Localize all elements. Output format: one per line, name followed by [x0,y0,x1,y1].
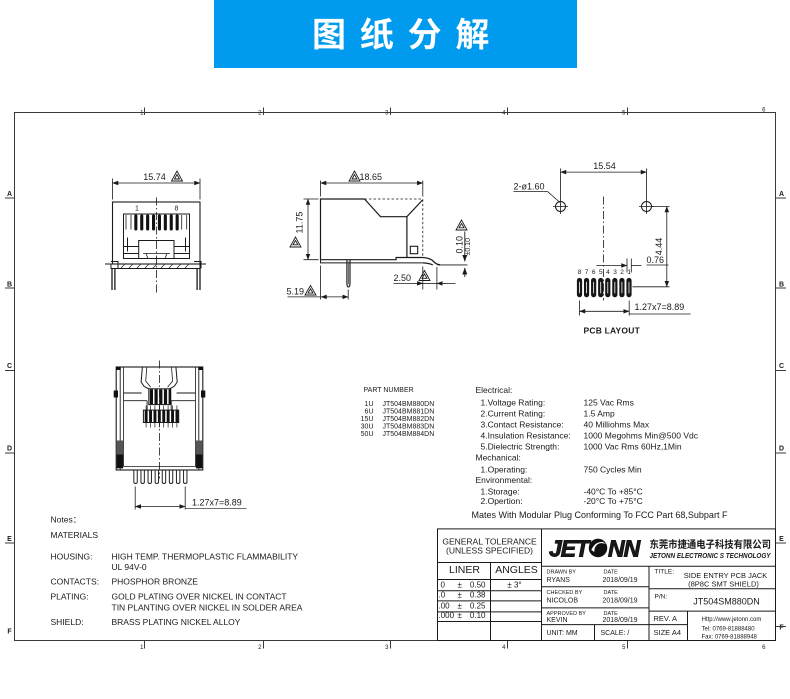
svg-text:2-ø1.60: 2-ø1.60 [514,182,545,192]
svg-text:1.27x7=8.89: 1.27x7=8.89 [635,302,685,312]
svg-text:SCALE: /: SCALE: / [601,630,630,637]
svg-text:0.25: 0.25 [470,602,486,611]
svg-text:PLATING:: PLATING: [51,592,89,602]
svg-text:GOLD PLATING OVER NICKEL IN CO: GOLD PLATING OVER NICKEL IN CONTACT [112,592,287,602]
svg-text:±: ± [458,602,463,611]
svg-text:8: 8 [578,269,582,276]
svg-text:(UNLESS SPECIFIED): (UNLESS SPECIFIED) [446,546,533,556]
svg-text:±: ± [458,591,463,600]
svg-text:1000 Vac Rms 60Hz,1Min: 1000 Vac Rms 60Hz,1Min [584,442,682,452]
svg-text:P/N:: P/N: [655,594,668,601]
svg-text:JT504BM880DN: JT504BM880DN [383,401,435,408]
svg-text:0.76: 0.76 [647,255,665,265]
svg-text:1000 Megohms Min@500 Vdc: 1000 Megohms Min@500 Vdc [584,431,699,441]
svg-text:3.Contact Resistance:: 3.Contact Resistance: [481,420,564,430]
svg-text:1.5 Amp: 1.5 Amp [584,409,615,419]
svg-text:1.Voltage Rating:: 1.Voltage Rating: [481,398,546,408]
svg-text:E: E [7,536,12,543]
svg-text:A: A [779,191,784,198]
svg-text:B: B [779,282,784,289]
svg-text:1: 1 [135,206,139,213]
svg-text:Electrical:: Electrical: [476,385,513,395]
svg-text:DATE: DATE [604,590,619,596]
svg-text:2018/09/19: 2018/09/19 [603,577,638,584]
svg-text:0.38: 0.38 [470,591,486,600]
svg-text:UNIT: MM: UNIT: MM [547,630,578,637]
svg-text:4: 4 [502,645,506,651]
svg-text:C: C [779,363,784,370]
svg-text:C: C [7,363,12,370]
svg-text:4: 4 [606,269,610,276]
svg-text:1.27x7=8.89: 1.27x7=8.89 [192,498,242,508]
svg-text:18.65: 18.65 [360,172,383,182]
svg-text:0.10: 0.10 [470,611,486,620]
svg-text:2: 2 [620,269,624,276]
svg-text:NN: NN [608,536,641,562]
svg-text:HIGH TEMP. THERMOPLASTIC FLAMM: HIGH TEMP. THERMOPLASTIC FLAMMABILITY [112,552,299,562]
svg-text:2018/09/19: 2018/09/19 [603,617,638,624]
svg-text:PCB LAYOUT: PCB LAYOUT [584,326,641,336]
svg-text:15.54: 15.54 [593,161,616,171]
svg-text:TITLE:: TITLE: [655,569,675,576]
svg-text:CHECKED BY: CHECKED BY [547,590,583,596]
svg-text:8: 8 [175,206,179,213]
svg-text:15U: 15U [361,416,374,423]
svg-text:5.Dielectric Strength:: 5.Dielectric Strength: [481,442,560,452]
svg-text:2.50: 2.50 [394,273,412,283]
svg-text:4.Insulation Resistance:: 4.Insulation Resistance: [481,431,571,441]
svg-text:BRASS PLATING NICKEL ALLOY: BRASS PLATING NICKEL ALLOY [112,617,241,627]
svg-text:RYANS: RYANS [547,577,571,584]
svg-text:6: 6 [592,269,596,276]
svg-text:E: E [779,536,784,543]
svg-text:JT504BM881DN: JT504BM881DN [383,409,435,416]
svg-text:KEVIN: KEVIN [547,617,568,624]
svg-text:CONTACTS:: CONTACTS: [51,577,99,587]
svg-text:(8P8C SMT SHIELD): (8P8C SMT SHIELD) [688,580,759,589]
svg-text:5: 5 [599,269,603,276]
svg-text:4.44: 4.44 [654,238,664,256]
svg-text:B: B [7,282,12,289]
svg-text:2.Current Rating:: 2.Current Rating: [481,409,546,419]
svg-text:30U: 30U [361,424,374,431]
svg-text:1: 1 [140,645,144,651]
svg-text:1.Storage:: 1.Storage: [481,487,520,497]
svg-text:2: 2 [258,645,262,651]
svg-text:.0: .0 [439,591,446,600]
svg-text:SHIELD:: SHIELD: [51,617,84,627]
svg-text:F: F [7,629,12,636]
svg-text:2: 2 [258,111,262,117]
svg-text:1U: 1U [365,401,374,408]
svg-text:±: ± [458,611,463,620]
svg-text:HOUSING:: HOUSING: [51,552,93,562]
svg-text:DATE: DATE [604,570,619,576]
svg-text:NICOLOB: NICOLOB [547,598,579,605]
svg-text:3: 3 [613,269,617,276]
svg-text:4: 4 [502,111,506,117]
svg-text:JT504SM880DN: JT504SM880DN [693,597,760,607]
svg-text:.00: .00 [439,602,451,611]
svg-text:6: 6 [762,645,766,651]
svg-text:Tel: 0769-81888480: Tel: 0769-81888480 [702,627,756,633]
svg-text:3: 3 [385,111,389,117]
svg-text:JT504BM882DN: JT504BM882DN [383,416,435,423]
svg-text:1.Operating:: 1.Operating: [481,465,528,475]
svg-text:-40°C To +85°C: -40°C To +85°C [584,487,643,497]
svg-text:D: D [779,446,784,453]
svg-text:2018/09/19: 2018/09/19 [603,598,638,605]
svg-text:Fax: 0769-81888948: Fax: 0769-81888948 [702,635,758,641]
svg-text:±: ± [458,581,463,590]
svg-text:UL 94V-0: UL 94V-0 [112,562,147,572]
svg-text:1: 1 [140,111,144,117]
svg-text:ANGLES: ANGLES [495,564,538,576]
svg-text:Mates With Modular Plug Confor: Mates With Modular Plug Conforming To FC… [472,510,728,520]
svg-text:SIZE A4: SIZE A4 [654,628,682,637]
svg-text:PHOSPHOR BRONZE: PHOSPHOR BRONZE [112,577,199,587]
svg-text:JETONN ELECTRONIC S TECHNOLOGY: JETONN ELECTRONIC S TECHNOLOGY [650,551,772,560]
svg-text:5: 5 [622,645,626,651]
svg-text:1: 1 [627,269,631,276]
svg-text:11.75: 11.75 [295,212,305,234]
svg-text:7: 7 [585,269,589,276]
svg-text:2.Opertion:: 2.Opertion: [481,496,523,506]
svg-text:DRAWN BY: DRAWN BY [547,570,577,576]
svg-text:PART NUMBER: PART NUMBER [364,387,414,394]
svg-text:-20°C To +75°C: -20°C To +75°C [584,496,643,506]
svg-text:50U: 50U [361,431,374,438]
svg-text:5: 5 [622,111,626,117]
svg-text:MATERIALS: MATERIALS [51,530,99,540]
svg-text:LINER: LINER [449,564,480,576]
svg-text:0: 0 [441,581,446,590]
svg-text:±0.10: ±0.10 [465,238,472,256]
svg-text:5.19: 5.19 [287,287,305,297]
svg-text:Environmental:: Environmental: [476,475,533,485]
svg-text:Notes：: Notes： [51,515,82,525]
svg-text:0.10: 0.10 [455,236,465,254]
svg-text:JT504BM883DN: JT504BM883DN [383,424,435,431]
svg-text:D: D [7,446,12,453]
svg-text:JET: JET [549,536,591,562]
svg-text:JT504BM884DN: JT504BM884DN [383,431,435,438]
svg-text:Mechanical:: Mechanical: [476,453,521,463]
svg-text:A: A [7,191,12,198]
svg-text:F: F [779,625,784,632]
svg-text:TIN PLANTING OVER NICKEL IN SO: TIN PLANTING OVER NICKEL IN SOLDER AREA [112,603,303,613]
svg-text:3: 3 [385,645,389,651]
svg-text:6U: 6U [365,409,374,416]
svg-text:40 Milliohms Max: 40 Milliohms Max [584,420,650,430]
svg-text:REV. A: REV. A [654,614,678,623]
svg-text:15.74: 15.74 [143,172,166,182]
svg-text:750 Cycles Min: 750 Cycles Min [584,465,642,475]
svg-text:Http://www.jetonn.com: Http://www.jetonn.com [702,617,762,623]
svg-text:± 3°: ± 3° [507,581,521,590]
svg-text:0.50: 0.50 [470,581,486,590]
svg-text:125 Vac Rms: 125 Vac Rms [584,398,634,408]
svg-text:.000: .000 [439,611,455,620]
